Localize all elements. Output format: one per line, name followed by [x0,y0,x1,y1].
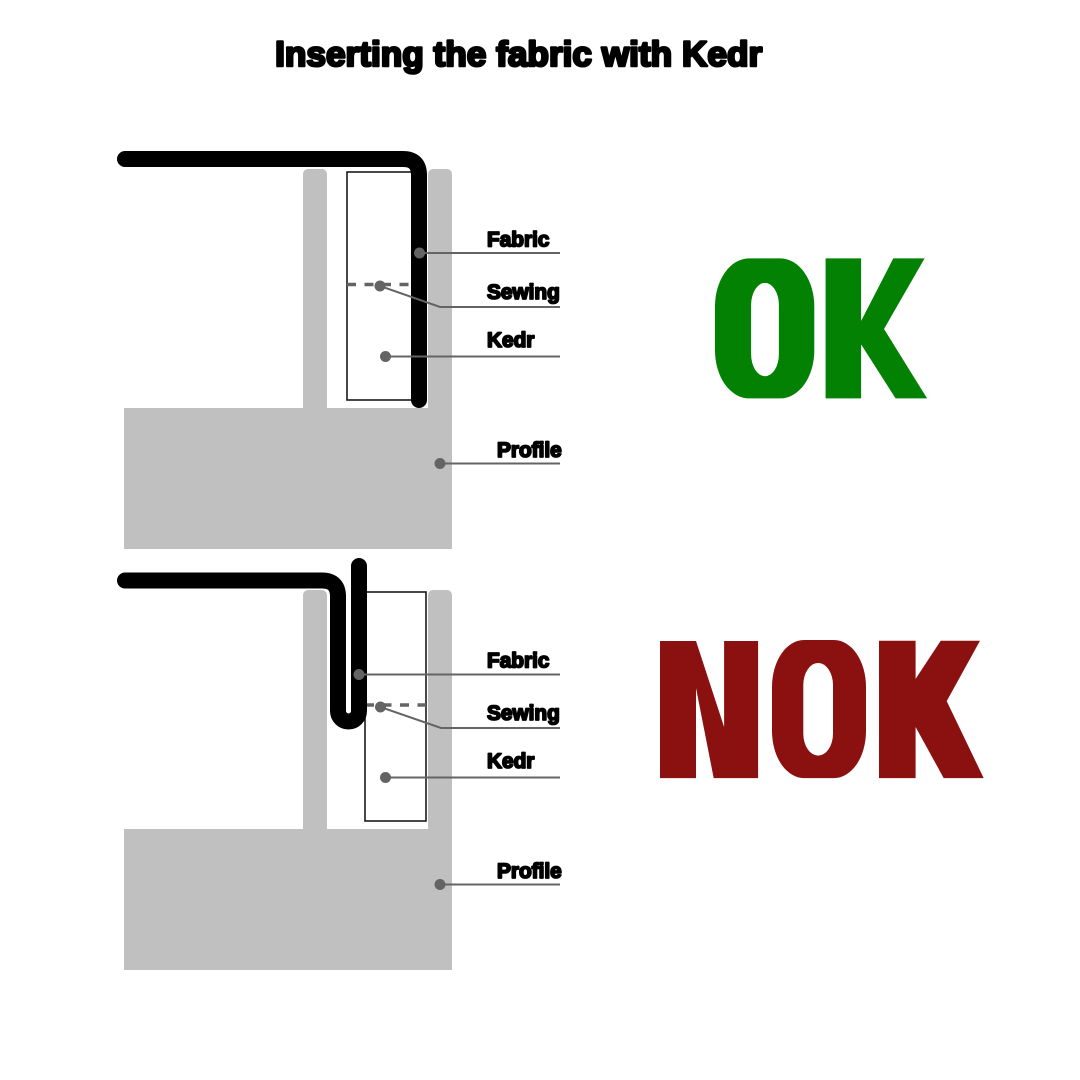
svg-text:Profile: Profile [497,860,562,883]
svg-text:Profile: Profile [497,439,562,462]
svg-text:Inserting the fabric with Kedr: Inserting the fabric with Kedr [275,35,762,74]
svg-text:Fabric: Fabric [487,650,549,673]
svg-text:Fabric: Fabric [487,229,549,252]
svg-text:Sewing: Sewing [487,281,560,304]
svg-text:Kedr: Kedr [487,329,534,352]
svg-text:Kedr: Kedr [487,750,534,773]
svg-text:Sewing: Sewing [487,702,560,725]
